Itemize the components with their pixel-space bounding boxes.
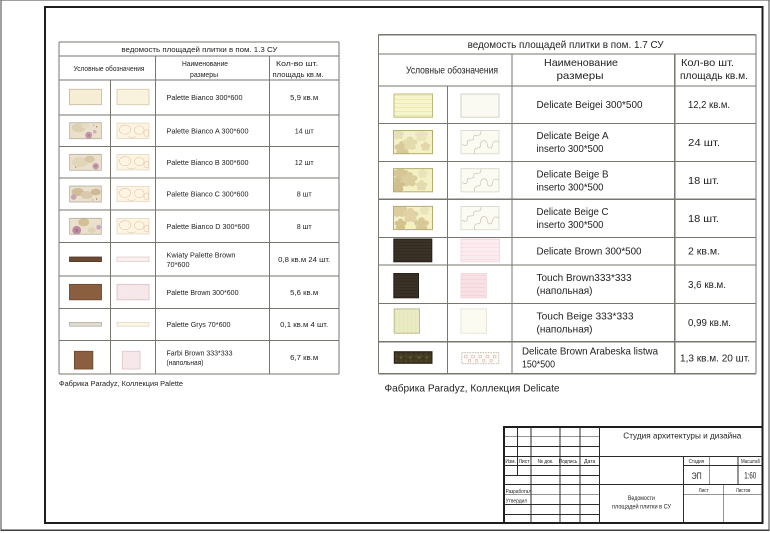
svg-text:Delicate Beigei 300*500: Delicate Beigei 300*500 (537, 100, 643, 111)
svg-text:Разработал: Разработал (506, 489, 531, 495)
svg-text:5,6 кв.м: 5,6 кв.м (290, 288, 318, 297)
svg-text:6,7 кв.м: 6,7 кв.м (290, 353, 318, 362)
svg-text:размеры: размеры (557, 71, 604, 82)
svg-text:1:60: 1:60 (744, 471, 756, 481)
svg-text:12 шт: 12 шт (295, 158, 314, 167)
svg-text:ЭП: ЭП (692, 470, 702, 481)
svg-text:2 кв.м.: 2 кв.м. (688, 247, 720, 258)
svg-text:Фабрика Paradyz, Коллекция Del: Фабрика Paradyz, Коллекция Delicate (385, 382, 560, 394)
svg-text:Palette Brown 300*600: Palette Brown 300*600 (167, 288, 239, 297)
svg-text:150*500: 150*500 (522, 360, 555, 371)
svg-text:Кол-во шт.: Кол-во шт. (681, 58, 734, 69)
svg-text:Студия архитектуры и дизайна: Студия архитектуры и дизайна (623, 431, 741, 441)
svg-text:(напольная): (напольная) (537, 325, 593, 336)
svg-text:14 шт: 14 шт (295, 126, 314, 135)
svg-text:Наименование: Наименование (544, 58, 618, 69)
svg-text:(напольная): (напольная) (537, 286, 593, 297)
svg-text:ведомость площадей плитки в по: ведомость площадей плитки в пом. 1.7 СУ (468, 40, 664, 51)
svg-text:5,9 кв.м: 5,9 кв.м (290, 93, 318, 102)
svg-text:0,99 кв.м.: 0,99 кв.м. (688, 318, 731, 329)
svg-text:18 шт.: 18 шт. (688, 214, 719, 225)
svg-text:Palette Bianco A 300*600: Palette Bianco A 300*600 (167, 126, 249, 135)
svg-text:Palette Bianco D 300*600: Palette Bianco D 300*600 (167, 222, 250, 231)
svg-text:Kwiaty Palette Brown: Kwiaty Palette Brown (167, 250, 236, 259)
svg-text:70*600: 70*600 (167, 260, 190, 269)
svg-text:№ док.: № док. (538, 459, 554, 465)
svg-text:площадей плитки в СУ: площадей плитки в СУ (612, 504, 671, 511)
svg-text:3,6 кв.м.: 3,6 кв.м. (688, 280, 726, 291)
svg-text:Условные обозначения: Условные обозначения (74, 64, 145, 73)
svg-text:18 шт.: 18 шт. (688, 176, 719, 187)
svg-text:Утвердил: Утвердил (506, 498, 527, 504)
svg-text:Подпись: Подпись (559, 459, 578, 465)
svg-text:1,3 кв.м. 20 шт.: 1,3 кв.м. 20 шт. (680, 353, 750, 364)
svg-text:Palette Grys 70*600: Palette Grys 70*600 (167, 320, 231, 329)
svg-text:Touch Brown333*333: Touch Brown333*333 (537, 273, 632, 284)
svg-text:inserto 300*500: inserto 300*500 (537, 144, 604, 155)
svg-text:Delicate Brown 300*500: Delicate Brown 300*500 (537, 247, 642, 258)
svg-text:24 шт.: 24 шт. (688, 138, 720, 149)
svg-text:Фабрика Paradyz, Коллекция Pal: Фабрика Paradyz, Коллекция Palette (59, 379, 183, 388)
svg-text:0,8 кв.м 24 шт.: 0,8 кв.м 24 шт. (278, 255, 330, 264)
svg-text:8 шт: 8 шт (297, 222, 312, 231)
svg-text:Лист: Лист (519, 459, 530, 465)
svg-text:Delicate Beige A: Delicate Beige A (537, 131, 609, 142)
svg-text:Изм.: Изм. (505, 459, 516, 465)
svg-text:Листов: Листов (736, 488, 751, 494)
svg-text:Условные обозначения: Условные обозначения (406, 65, 498, 77)
svg-text:Farbi Brown 333*333: Farbi Brown 333*333 (167, 348, 233, 357)
svg-text:площадь кв.м.: площадь кв.м. (273, 70, 324, 79)
svg-text:Delicate Brown Arabeska listwa: Delicate Brown Arabeska listwa (522, 347, 658, 358)
svg-text:(напольная): (напольная) (167, 358, 204, 367)
svg-text:Delicate Beige B: Delicate Beige B (537, 169, 609, 180)
svg-text:inserto 300*500: inserto 300*500 (537, 220, 604, 231)
svg-text:Дата: Дата (584, 459, 596, 465)
svg-text:Palette Bianco C 300*600: Palette Bianco C 300*600 (167, 190, 249, 199)
svg-text:0,1 кв.м 4 шт.: 0,1 кв.м 4 шт. (280, 320, 328, 329)
svg-text:Стадия: Стадия (689, 459, 705, 465)
svg-text:Touch Beige 333*333: Touch Beige 333*333 (537, 312, 634, 323)
svg-text:Palette Bianco B 300*600: Palette Bianco B 300*600 (167, 158, 249, 167)
svg-text:Лист: Лист (699, 488, 709, 494)
svg-text:площадь кв.м.: площадь кв.м. (680, 71, 748, 82)
svg-text:Кол-во шт.: Кол-во шт. (276, 59, 318, 68)
svg-text:Palette Bianco 300*600: Palette Bianco 300*600 (167, 93, 243, 102)
svg-text:8 шт: 8 шт (297, 190, 312, 199)
svg-text:Delicate Beige C: Delicate Beige C (537, 207, 609, 218)
svg-text:inserto 300*500: inserto 300*500 (537, 182, 604, 193)
svg-text:Ведомости: Ведомости (628, 495, 655, 502)
svg-text:размеры: размеры (190, 70, 218, 79)
svg-text:Наименование: Наименование (182, 59, 228, 68)
svg-text:12,2 кв.м.: 12,2 кв.м. (688, 100, 730, 111)
svg-text:ведомость площадей плитки в по: ведомость площадей плитки в пом. 1.3 СУ (121, 45, 277, 54)
svg-text:Масштаб: Масштаб (741, 459, 760, 465)
